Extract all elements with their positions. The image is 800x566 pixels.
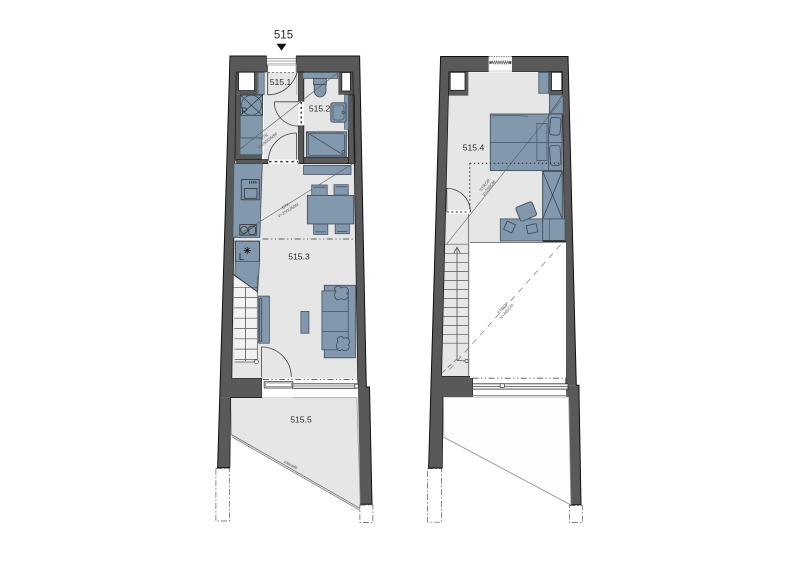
svg-text:515.4: 515.4 xyxy=(463,143,485,153)
svg-text:515.1: 515.1 xyxy=(270,77,292,87)
svg-text:P: P xyxy=(241,106,247,116)
svg-text:515: 515 xyxy=(274,30,293,42)
svg-text:515.2: 515.2 xyxy=(309,103,331,113)
svg-text:515.3: 515.3 xyxy=(288,252,310,262)
svg-text:515.5: 515.5 xyxy=(290,415,312,425)
